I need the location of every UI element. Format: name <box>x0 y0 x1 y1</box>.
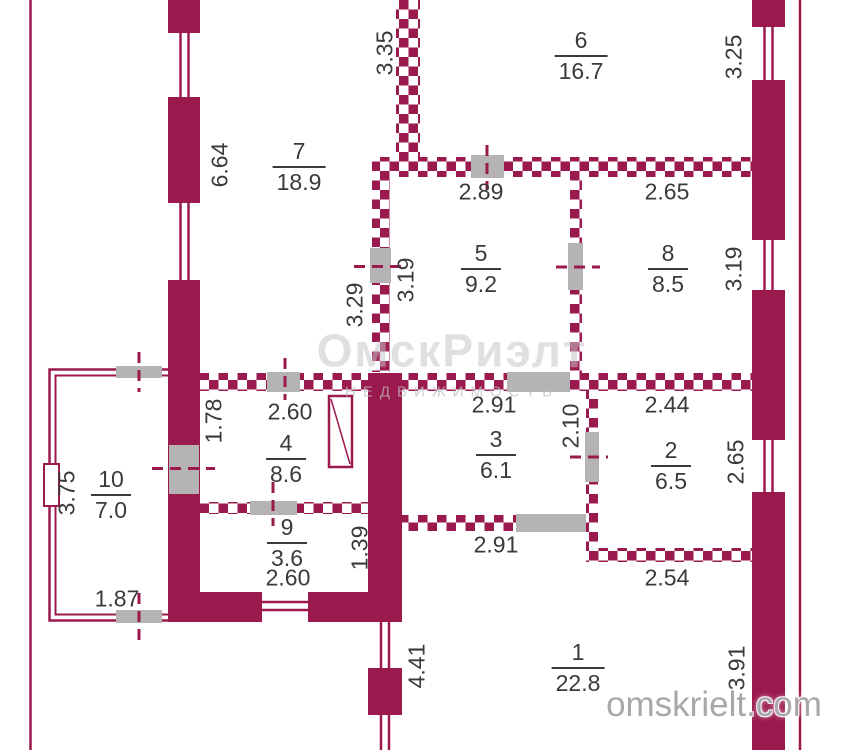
dim-2-91-bottom: 2.91 <box>474 534 519 557</box>
room-number: 6 <box>571 29 592 55</box>
room-area: 8.5 <box>648 268 688 296</box>
dim-3-35: 3.35 <box>374 31 397 76</box>
dim-2-54: 2.54 <box>645 567 690 590</box>
dim-4-41: 4.41 <box>406 644 429 689</box>
room-area: 22.8 <box>552 667 605 695</box>
room-3-label: 3 6.1 <box>476 428 516 482</box>
room-number: 10 <box>94 468 128 494</box>
dim-3-75: 3.75 <box>56 471 79 516</box>
dim-3-25: 3.25 <box>723 35 746 80</box>
room-6-label: 6 16.7 <box>555 29 608 83</box>
site-watermark: omskrielt.com <box>606 685 822 725</box>
room-5-label: 5 9.2 <box>461 242 501 296</box>
room-number: 1 <box>568 641 589 667</box>
dim-1-78: 1.78 <box>203 399 226 444</box>
dim-2-10: 2.10 <box>560 404 583 449</box>
room-area: 9.2 <box>461 268 501 296</box>
room-1-label: 1 22.8 <box>552 641 605 695</box>
room-number: 8 <box>658 242 679 268</box>
dim-1-87: 1.87 <box>95 588 140 611</box>
door-leaf-symbol <box>329 396 352 467</box>
room-area: 6.5 <box>651 465 691 493</box>
room-number: 2 <box>661 439 682 465</box>
dim-3-19-right: 3.19 <box>723 247 746 292</box>
room-number: 9 <box>277 516 298 542</box>
dim-2-65-top: 2.65 <box>645 181 690 204</box>
room-number: 3 <box>486 428 507 454</box>
dim-2-60-bottom: 2.60 <box>266 567 311 590</box>
room-7-label: 7 18.9 <box>273 140 326 194</box>
room-4-label: 4 8.6 <box>266 432 306 486</box>
dim-3-91: 3.91 <box>726 646 749 691</box>
dim-3-29: 3.29 <box>344 283 367 328</box>
room-number: 4 <box>276 432 297 458</box>
dim-2-89: 2.89 <box>459 181 504 204</box>
dim-1-39: 1.39 <box>349 526 372 571</box>
room-number: 5 <box>471 242 492 268</box>
room-10-label: 10 7.0 <box>91 468 131 522</box>
floor-plan: ОмскРиэлт НЕДВИЖИМОСТЬ 7 18.9 6 16.7 5 9… <box>0 0 852 750</box>
dim-2-91-top: 2.91 <box>472 394 517 417</box>
room-area: 16.7 <box>555 55 608 83</box>
room-area: 8.6 <box>266 458 306 486</box>
dim-2-65-right: 2.65 <box>725 440 748 485</box>
room-9-label: 9 3.6 <box>267 516 307 570</box>
room-area: 18.9 <box>273 166 326 194</box>
dim-2-44: 2.44 <box>645 394 690 417</box>
room-area: 6.1 <box>476 454 516 482</box>
dim-2-60-top: 2.60 <box>268 401 313 424</box>
room-2-label: 2 6.5 <box>651 439 691 493</box>
room-8-label: 8 8.5 <box>648 242 688 296</box>
room-area: 7.0 <box>91 494 131 522</box>
floor-plan-drawing <box>0 0 852 750</box>
dim-3-19-left: 3.19 <box>395 258 418 303</box>
dim-6-64: 6.64 <box>209 143 232 188</box>
room-number: 7 <box>289 140 310 166</box>
